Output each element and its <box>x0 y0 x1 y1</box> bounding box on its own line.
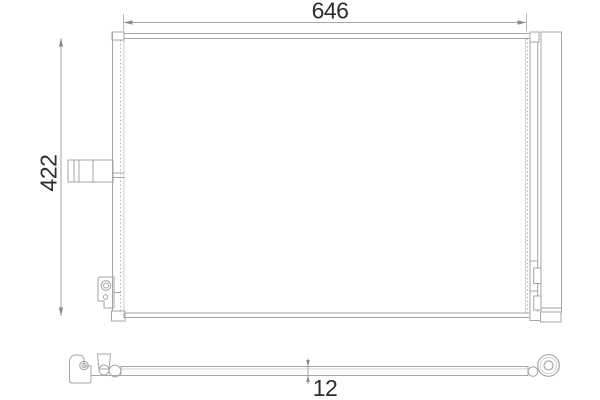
condenser-drawing-canvas: 646 422 12 <box>0 0 600 400</box>
bracket-hole-outer <box>101 281 111 291</box>
side-view-foot-bracket <box>70 355 92 383</box>
receiver-drier <box>541 32 562 322</box>
right-connector-tab-upper <box>534 268 541 284</box>
dim-height-arrow-top <box>59 38 63 47</box>
dimension-labels: 646 422 12 <box>36 0 349 400</box>
side-view-fitting-stub <box>98 354 111 369</box>
right-tank <box>530 32 541 321</box>
receiver-drier-bottom-cap <box>541 312 562 322</box>
bracket-hole-inner <box>104 283 109 288</box>
mounting-bracket <box>98 277 121 308</box>
dim-depth-arrow-bottom <box>306 376 310 383</box>
side-view-drier-circle-mid <box>540 357 556 373</box>
core <box>124 34 530 318</box>
core-bottom-header <box>124 313 530 318</box>
dim-width-arrow-left <box>124 20 133 24</box>
right-connector-tab-lower <box>534 296 541 310</box>
dim-width-arrow-right <box>518 20 527 24</box>
inlet-fitting-body <box>68 160 113 182</box>
dim-width-label: 646 <box>312 0 349 24</box>
core-top-header <box>124 34 530 39</box>
inlet-fitting <box>68 160 124 182</box>
technical-drawing-page: 646 422 12 <box>0 0 600 400</box>
left-tank-bottom-cap <box>112 311 126 321</box>
front-view <box>68 32 562 322</box>
dim-depth-label: 12 <box>313 375 338 400</box>
bracket-small-hole <box>103 295 107 299</box>
dim-depth-arrow-top <box>306 360 310 367</box>
dim-height-label: 422 <box>36 155 62 192</box>
mounting-bracket-plate <box>98 277 114 308</box>
receiver-drier-body <box>541 32 562 312</box>
drawing-art: 646 422 12 <box>36 0 562 400</box>
side-view-drier-circle-outer <box>538 355 560 377</box>
side-view-drier-circle-inner <box>544 361 553 370</box>
side-view-right-pipe-end <box>528 367 538 377</box>
dim-height-arrow-bottom <box>59 308 63 317</box>
side-view-pipe-end-1 <box>99 365 109 375</box>
left-tank-top-cap <box>112 32 124 40</box>
right-tank-top-step <box>530 32 539 42</box>
dimension-depth <box>306 359 310 385</box>
